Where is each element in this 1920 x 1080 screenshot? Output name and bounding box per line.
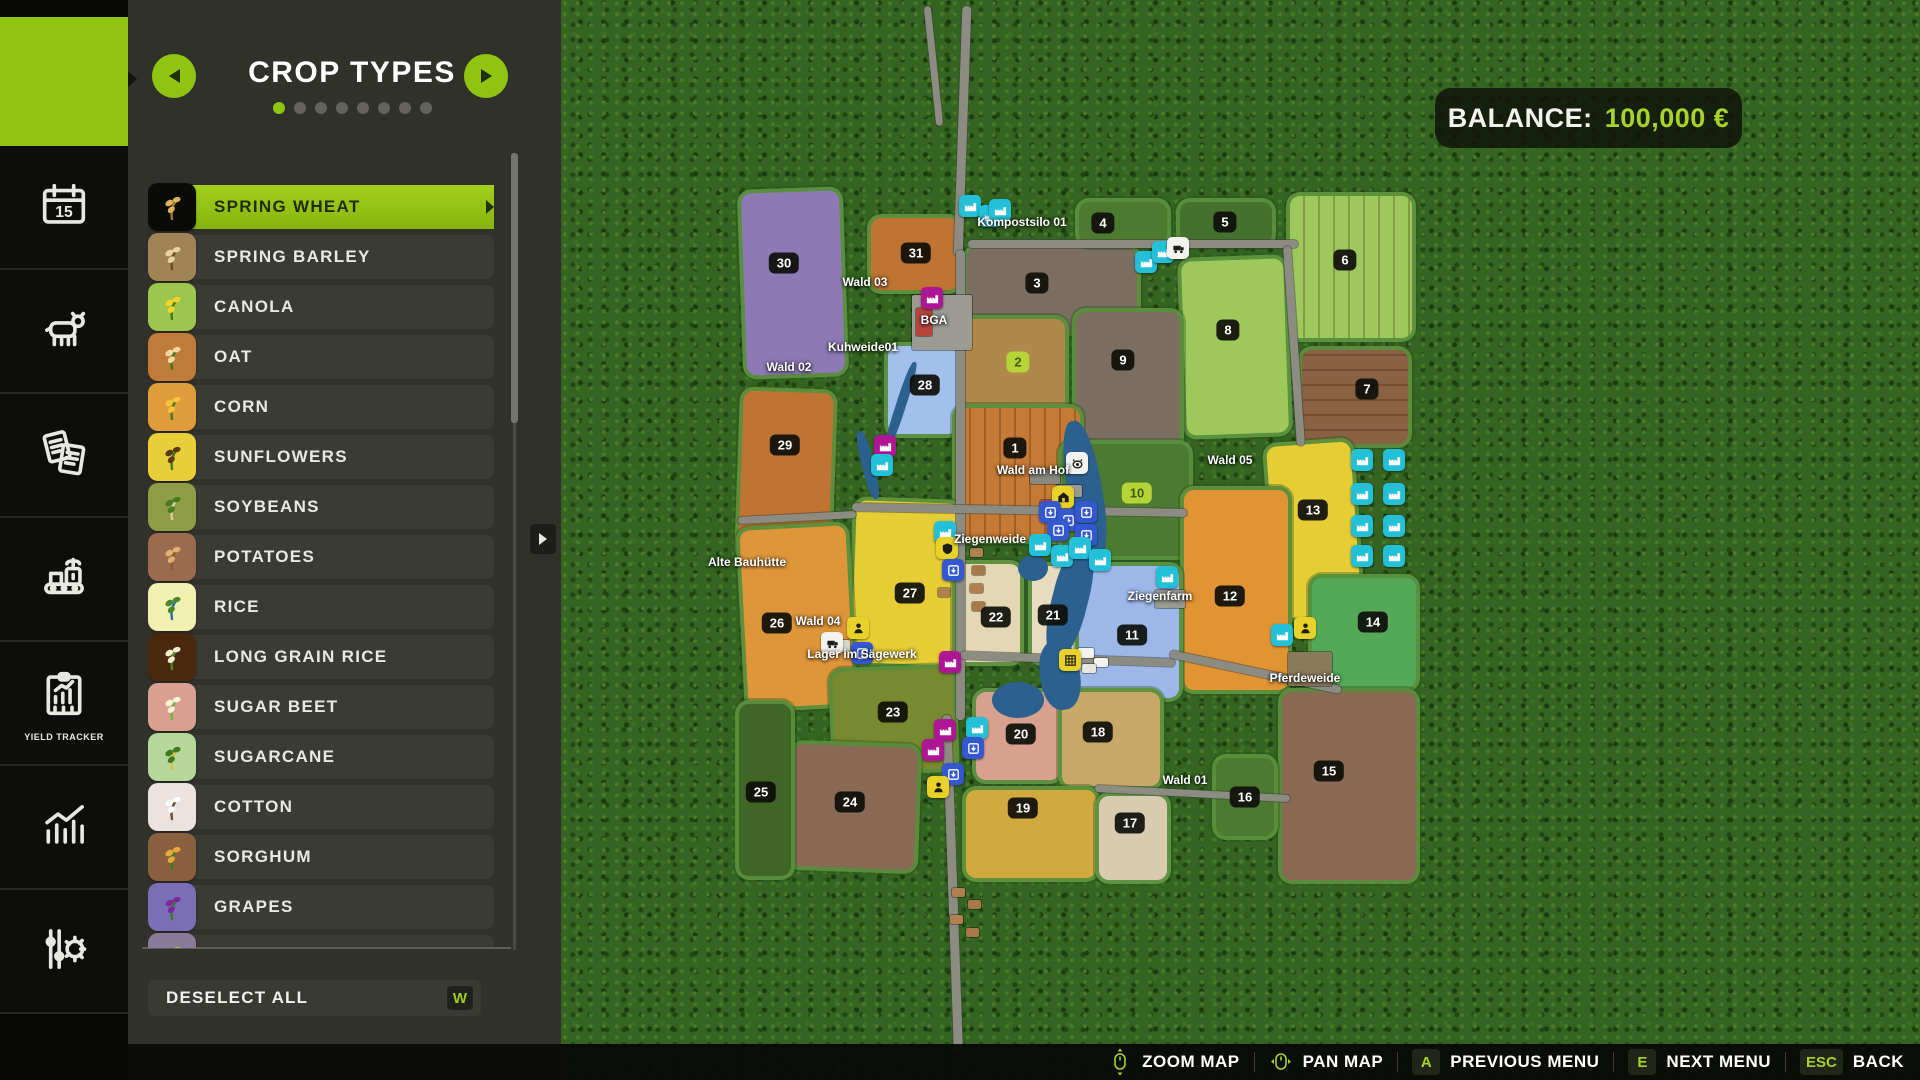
pagination-dot[interactable] [273, 102, 285, 114]
sidebar-items: 15YIELD TRACKER [0, 146, 128, 1014]
building [966, 928, 979, 937]
crop-bar: OAT [188, 335, 494, 379]
crop-bar: SUGARCANE [188, 735, 494, 779]
crop-label: SUGAR BEET [214, 697, 338, 717]
map-field-8[interactable] [1177, 254, 1293, 440]
crop-row-grapes[interactable]: GRAPES [148, 882, 494, 932]
crop-label: GRAPES [214, 897, 294, 917]
hotkey-label: PAN MAP [1303, 1052, 1384, 1072]
crop-label: COTTON [214, 797, 293, 817]
road [954, 6, 972, 256]
map-location-label: Pferdeweide [1270, 671, 1341, 685]
arrow-left-icon [169, 69, 180, 83]
deselect-all-button[interactable]: DESELECT ALL W [148, 980, 481, 1016]
field-number-badge[interactable]: 3 [1025, 273, 1048, 294]
crop-row-cotton[interactable]: COTTON [148, 782, 494, 832]
sugar-beet-icon [148, 683, 196, 731]
crop-bar: CANOLA [188, 285, 494, 329]
scrollbar-thumb[interactable] [511, 153, 518, 423]
crop-bar: LONG GRAIN RICE [188, 635, 494, 679]
barley-icon [148, 233, 196, 281]
production-icon[interactable] [1271, 624, 1293, 646]
balance-value: 100,000 € [1605, 103, 1730, 134]
deselect-all-label: DESELECT ALL [166, 988, 447, 1008]
sunflower-icon [148, 433, 196, 481]
pagination-dot[interactable] [336, 102, 348, 114]
crop-row-sorghum[interactable]: SORGHUM [148, 832, 494, 882]
biogas-icon[interactable] [921, 287, 943, 309]
crop-label: RICE [214, 597, 260, 617]
crop-label: SPRING BARLEY [214, 247, 371, 267]
field-number-badge[interactable]: 2 [1006, 352, 1029, 373]
production-icon[interactable] [1351, 483, 1373, 505]
sidebar-item-animals[interactable] [0, 270, 128, 394]
calendar-icon: 15 [35, 176, 93, 239]
field-number-badge[interactable]: 4 [1091, 213, 1114, 234]
panel-title: CROP TYPES [196, 56, 508, 90]
crop-label: SPRING WHEAT [214, 197, 361, 217]
map-field-7[interactable] [1298, 346, 1412, 448]
animals-icon [35, 300, 93, 363]
sorghum-icon [148, 833, 196, 881]
hotkey-label: PREVIOUS MENU [1450, 1052, 1599, 1072]
field-number-badge[interactable]: 25 [746, 782, 776, 803]
crop-label: OAT [214, 347, 253, 367]
divider [1397, 1052, 1398, 1072]
wheat-icon [148, 183, 196, 231]
crop-label: SUNFLOWERS [214, 447, 348, 467]
production-icon[interactable] [1156, 566, 1178, 588]
building [950, 915, 963, 924]
field-number-badge[interactable]: 27 [895, 583, 925, 604]
map-location-label: Wald 02 [767, 360, 812, 374]
divider [1613, 1052, 1614, 1072]
hotkey-previous-menu[interactable]: APREVIOUS MENU [1412, 1049, 1599, 1075]
storage-icon[interactable] [1075, 501, 1097, 523]
production-icon[interactable] [1351, 545, 1373, 567]
biogas-icon[interactable] [939, 651, 961, 673]
crop-bar: CORN [188, 385, 494, 429]
crop-label: SORGHUM [214, 847, 312, 867]
field-number-badge[interactable]: 11 [1117, 625, 1147, 646]
production-icon[interactable] [871, 454, 893, 476]
sidebar-item-settings[interactable] [0, 890, 128, 1014]
field-number-badge[interactable]: 18 [1083, 722, 1113, 743]
key-hint-e: E [1628, 1049, 1656, 1075]
building [972, 566, 985, 575]
divider [1254, 1052, 1255, 1072]
sidebar-item-statistics[interactable] [0, 766, 128, 890]
hotkey-back[interactable]: ESCBACK [1800, 1049, 1904, 1075]
map-location-label: Ziegenfarm [1128, 589, 1193, 603]
storage-icon[interactable] [962, 737, 984, 759]
panel-collapse-handle[interactable] [530, 524, 556, 554]
production-icon[interactable] [959, 195, 981, 217]
field-number-badge[interactable]: 20 [1006, 724, 1036, 745]
olives-icon [148, 933, 196, 948]
production-icon [35, 548, 93, 611]
vehicle-icon[interactable] [1167, 237, 1189, 259]
pagination-dot[interactable] [357, 102, 369, 114]
map-location-label: Wald 05 [1208, 453, 1253, 467]
balance-label: BALANCE: [1448, 103, 1593, 134]
field-number-badge[interactable]: 31 [901, 243, 931, 264]
production-icon[interactable] [1383, 545, 1405, 567]
mouse-zoom-icon [1108, 1047, 1132, 1077]
field-number-badge[interactable]: 28 [910, 375, 940, 396]
solar-icon[interactable] [1059, 649, 1081, 671]
field-number-badge[interactable]: 21 [1038, 605, 1068, 626]
storage-icon[interactable] [942, 559, 964, 581]
map-view[interactable]: 3031345678922829110131227262221111423201… [561, 0, 1920, 1080]
production-icon[interactable] [1383, 449, 1405, 471]
field-number-badge[interactable]: 12 [1215, 586, 1245, 607]
potato-icon [148, 533, 196, 581]
field-number-badge[interactable]: 23 [878, 702, 908, 723]
sugarcane-icon [148, 733, 196, 781]
hotkey-pan-map[interactable]: PAN MAP [1269, 1047, 1384, 1077]
balance-display: BALANCE: 100,000 € [1435, 88, 1742, 148]
crop-bar: SORGHUM [188, 835, 494, 879]
production-icon[interactable] [1351, 449, 1373, 471]
map-field-15[interactable] [1278, 688, 1420, 884]
corn-icon [148, 383, 196, 431]
map-location-label: BGA [921, 313, 948, 327]
map-location-label: Wald am Hof [997, 463, 1069, 477]
map-location-label: Wald 03 [843, 275, 888, 289]
pagination-dot[interactable] [315, 102, 327, 114]
canola-icon [148, 283, 196, 331]
building [938, 588, 950, 597]
map-location-label: Lager im Sägewerk [807, 647, 916, 661]
crop-row-sugarcane[interactable]: SUGARCANE [148, 732, 494, 782]
map-location-label: Kompostsilo 01 [977, 215, 1066, 229]
field-number-badge[interactable]: 7 [1355, 379, 1378, 400]
sidebar-item-production[interactable] [0, 518, 128, 642]
crop-row-soybeans[interactable]: SOYBEANS [148, 482, 494, 532]
sidebar-item-yield-tracker[interactable]: YIELD TRACKER [0, 642, 128, 766]
settings-icon [35, 920, 93, 983]
yield-tracker-icon [35, 665, 93, 728]
pagination-dot[interactable] [378, 102, 390, 114]
crop-bar: GRAPES [188, 885, 494, 929]
worker-icon[interactable] [1294, 617, 1316, 639]
cotton-icon [148, 783, 196, 831]
map-location-label: Kuhweide01 [828, 340, 898, 354]
building [1082, 664, 1096, 673]
crop-bar: COTTON [188, 785, 494, 829]
key-hint-w: W [447, 986, 473, 1010]
field-number-badge[interactable]: 13 [1298, 500, 1328, 521]
crop-label: LONG GRAIN RICE [214, 647, 387, 667]
pagination-dot[interactable] [399, 102, 411, 114]
map-location-label: Wald 04 [796, 614, 841, 628]
sidebar-item-calendar[interactable]: 15 [0, 146, 128, 270]
field-number-badge[interactable]: 10 [1122, 483, 1152, 504]
field-number-badge[interactable]: 29 [770, 435, 800, 456]
map-location-label: Alte Bauhütte [708, 555, 786, 569]
production-icon[interactable] [1029, 534, 1051, 556]
key-hint-a: A [1412, 1049, 1440, 1075]
sidebar-item-map[interactable] [0, 17, 128, 146]
crop-label: CANOLA [214, 297, 295, 317]
yield-tracker-label: YIELD TRACKER [24, 732, 104, 742]
crop-row-canola[interactable]: CANOLA [148, 282, 494, 332]
crop-bar: SOYBEANS [188, 485, 494, 529]
oat-icon [148, 333, 196, 381]
pagination-dot[interactable] [294, 102, 306, 114]
svg-text:15: 15 [55, 204, 73, 221]
field-number-badge[interactable]: 26 [762, 613, 792, 634]
production-icon[interactable] [966, 717, 988, 739]
crop-row-long-grain-rice[interactable]: LONG GRAIN RICE [148, 632, 494, 682]
crop-bar: SUGAR BEET [188, 685, 494, 729]
key-hint-esc: ESC [1800, 1049, 1843, 1075]
building [952, 888, 965, 897]
field-number-badge[interactable]: 16 [1230, 787, 1260, 808]
map-location-label: Ziegenweide [954, 532, 1026, 546]
rice-icon [148, 583, 196, 631]
crop-row-oat[interactable]: OAT [148, 332, 494, 382]
sidebar-item-contracts[interactable] [0, 394, 128, 518]
crop-row-spring-wheat[interactable]: SPRING WHEAT [148, 182, 494, 232]
crop-bar: POTATOES [188, 535, 494, 579]
crop-bar: SUNFLOWERS [188, 435, 494, 479]
crop-types-panel: CROP TYPES SPRING WHEATSPRING BARLEYCANO… [128, 0, 561, 1080]
bottom-hotkey-bar: ZOOM MAPPAN MAPAPREVIOUS MENUENEXT MENUE… [0, 1044, 1920, 1080]
production-icon[interactable] [1383, 483, 1405, 505]
map-location-label: Wald 01 [1163, 773, 1208, 787]
production-icon[interactable] [1383, 515, 1405, 537]
hotkey-next-menu[interactable]: ENEXT MENU [1628, 1049, 1771, 1075]
map-layer: 3031345678922829110131227262221111423201… [561, 0, 1920, 1080]
production-icon[interactable] [1069, 537, 1091, 559]
grapes-icon [148, 883, 196, 931]
hotkey-label: BACK [1853, 1052, 1904, 1072]
building [970, 548, 983, 557]
contracts-icon [35, 424, 93, 487]
animal-pen-icon[interactable] [1066, 452, 1088, 474]
water-body [1018, 555, 1048, 581]
road [924, 6, 944, 126]
crop-label: SUGARCANE [214, 747, 335, 767]
field-number-badge[interactable]: 24 [835, 792, 865, 813]
field-number-badge[interactable]: 22 [981, 607, 1011, 628]
game-screen: 3031345678922829110131227262221111423201… [0, 0, 1920, 1080]
pagination-dots [196, 102, 508, 114]
statistics-icon [35, 796, 93, 859]
crop-bar: SPRING BARLEY [188, 235, 494, 279]
map-field-9[interactable] [1072, 308, 1184, 454]
crop-row-spring-barley[interactable]: SPRING BARLEY [148, 232, 494, 282]
sidebar-rail: 15YIELD TRACKER [0, 0, 128, 1080]
worker-icon[interactable] [847, 617, 869, 639]
crop-bar: SPRING WHEAT [188, 185, 494, 229]
field-number-badge[interactable]: 8 [1216, 320, 1239, 341]
field-number-badge[interactable]: 30 [769, 253, 799, 274]
crop-bar: RICE [188, 585, 494, 629]
production-icon[interactable] [1351, 515, 1373, 537]
crop-row-corn[interactable]: CORN [148, 382, 494, 432]
water-body [992, 682, 1044, 718]
prev-category-button[interactable] [152, 54, 196, 98]
crop-label: SOYBEANS [214, 497, 320, 517]
list-divider [142, 947, 511, 949]
hotkey-zoom-map[interactable]: ZOOM MAP [1108, 1047, 1240, 1077]
crop-row-olives[interactable]: OLIVES [148, 932, 494, 948]
field-number-badge[interactable]: 15 [1314, 761, 1344, 782]
field-number-badge[interactable]: 9 [1111, 350, 1134, 371]
biogas-icon[interactable] [934, 719, 956, 741]
building [1094, 658, 1108, 667]
long-grain-rice-icon [148, 633, 196, 681]
soybean-icon [148, 483, 196, 531]
field-number-badge[interactable]: 19 [1008, 798, 1038, 819]
crop-row-rice[interactable]: RICE [148, 582, 494, 632]
building [968, 900, 981, 909]
crop-row-sugar-beet[interactable]: SUGAR BEET [148, 682, 494, 732]
biogas-icon[interactable] [922, 739, 944, 761]
field-number-badge[interactable]: 14 [1358, 612, 1388, 633]
pagination-dot[interactable] [420, 102, 432, 114]
mouse-pan-icon [1269, 1047, 1293, 1077]
crop-row-potatoes[interactable]: POTATOES [148, 532, 494, 582]
field-number-badge[interactable]: 1 [1003, 438, 1026, 459]
map-field-17[interactable] [1095, 792, 1171, 884]
road [968, 240, 1298, 248]
field-number-badge[interactable]: 17 [1115, 813, 1145, 834]
crop-label: POTATOES [214, 547, 315, 567]
hotkey-label: ZOOM MAP [1142, 1052, 1240, 1072]
field-number-badge[interactable]: 5 [1213, 212, 1236, 233]
crop-label: CORN [214, 397, 269, 417]
production-icon[interactable] [1089, 549, 1111, 571]
crop-row-sunflowers[interactable]: SUNFLOWERS [148, 432, 494, 482]
building [970, 584, 983, 593]
crop-list: SPRING WHEATSPRING BARLEYCANOLAOATCORNSU… [148, 182, 494, 948]
field-number-badge[interactable]: 6 [1333, 250, 1356, 271]
divider [1785, 1052, 1786, 1072]
worker-icon[interactable] [927, 776, 949, 798]
hotkey-label: NEXT MENU [1666, 1052, 1771, 1072]
